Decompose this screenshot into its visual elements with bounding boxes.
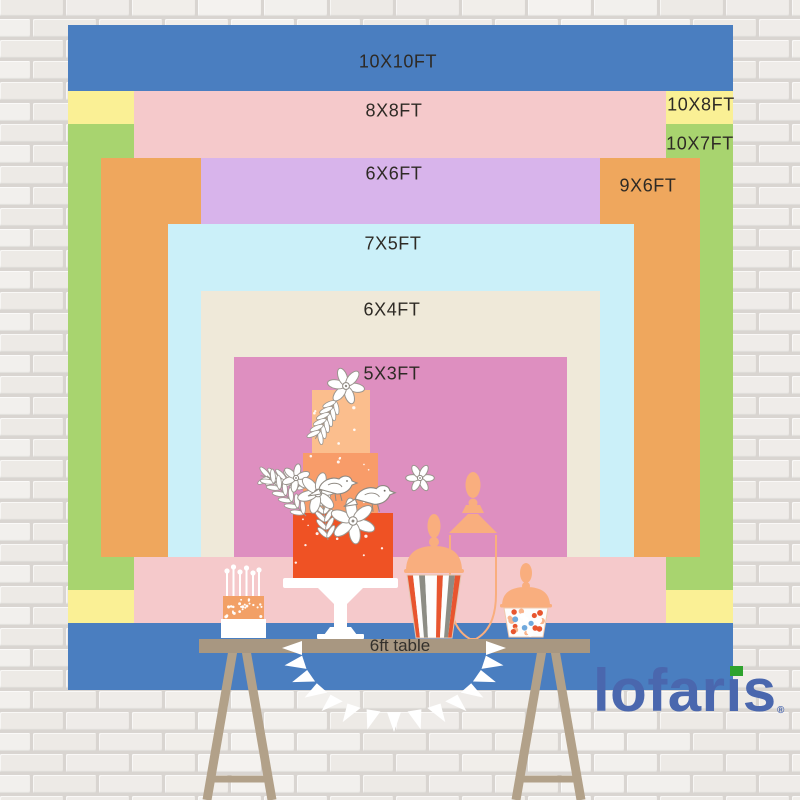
size-label-10x7ft: 10X7FT (666, 134, 734, 155)
size-label-6x4ft: 6X4FT (363, 300, 420, 321)
registered-mark: ® (777, 705, 784, 716)
backdrop-size-chart: 10X10FT10X8FT10X7FT8X8FT9X6FT6X6FT7X5FT6… (0, 0, 800, 800)
size-label-9x6ft: 9X6FT (619, 176, 676, 197)
size-label-8x8ft: 8X8FT (365, 101, 422, 122)
size-label-10x8ft: 10X8FT (667, 95, 735, 116)
size-label-10x10ft: 10X10FT (359, 52, 437, 73)
size-label-5x3ft: 5X3FT (363, 364, 420, 385)
logo-text: lofarıs (593, 663, 793, 719)
table-length-label: 6ft table (370, 636, 431, 656)
size-label-7x5ft: 7X5FT (364, 234, 421, 255)
brand-logo: lofarıs ® (593, 663, 793, 723)
size-label-6x6ft: 6X6FT (365, 164, 422, 185)
logo-green-square (730, 666, 743, 676)
